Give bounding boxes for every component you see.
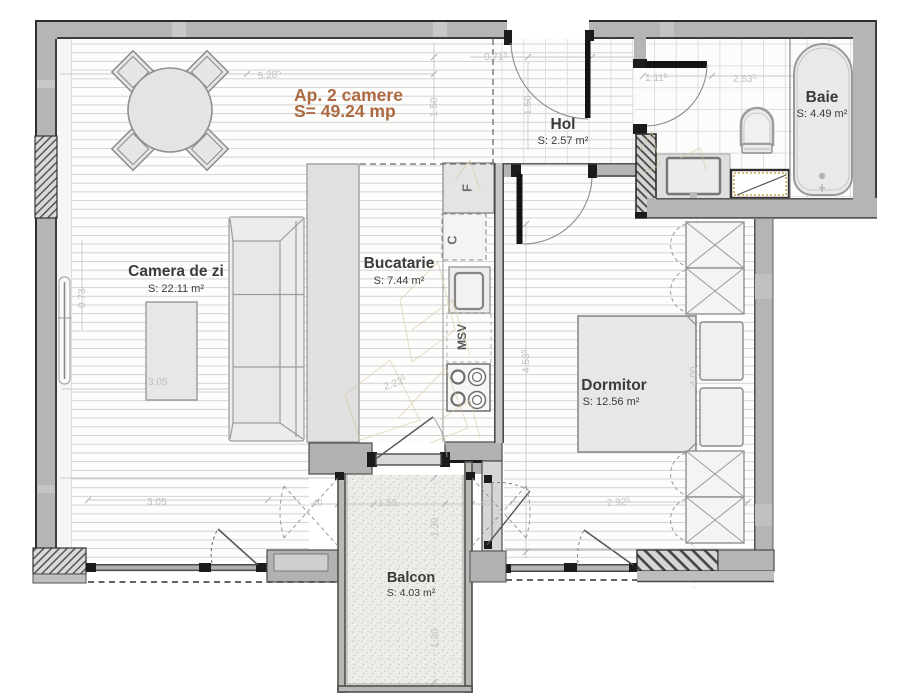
- svg-text:1.30: 1.30: [430, 517, 441, 537]
- svg-text:Camera de zi: Camera de zi: [128, 263, 224, 280]
- svg-text:Balcon: Balcon: [387, 570, 435, 586]
- svg-text:3.05: 3.05: [148, 377, 168, 388]
- svg-text:S: 7.44 m²: S: 7.44 m²: [374, 275, 425, 287]
- svg-text:Baie: Baie: [806, 89, 839, 106]
- svg-text:S= 49.24 mp: S= 49.24 mp: [294, 101, 396, 121]
- svg-text:1.55: 1.55: [378, 498, 398, 509]
- svg-text:.40: .40: [310, 498, 323, 508]
- svg-text:.40: .40: [478, 498, 491, 508]
- svg-text:0.73: 0.73: [77, 288, 88, 308]
- svg-text:3.05: 3.05: [147, 497, 167, 508]
- svg-text:1.50: 1.50: [523, 95, 534, 115]
- svg-text:S: 22.11 m²: S: 22.11 m²: [148, 283, 204, 295]
- svg-text:1.50: 1.50: [429, 97, 440, 117]
- svg-text:S: 4.49 m²: S: 4.49 m²: [797, 108, 848, 120]
- svg-text:Dormitor: Dormitor: [581, 377, 646, 394]
- svg-text:C: C: [444, 235, 459, 245]
- svg-text:S: 12.56 m²: S: 12.56 m²: [583, 396, 640, 408]
- svg-text:S: 4.03 m²: S: 4.03 m²: [387, 587, 436, 599]
- svg-text:F: F: [459, 184, 474, 192]
- svg-text:1.30: 1.30: [430, 628, 441, 648]
- svg-text:4.00: 4.00: [689, 366, 700, 386]
- svg-text:Hol: Hol: [551, 116, 576, 133]
- svg-text:S: 2.57 m²: S: 2.57 m²: [538, 135, 589, 147]
- svg-text:Bucatarie: Bucatarie: [364, 255, 435, 272]
